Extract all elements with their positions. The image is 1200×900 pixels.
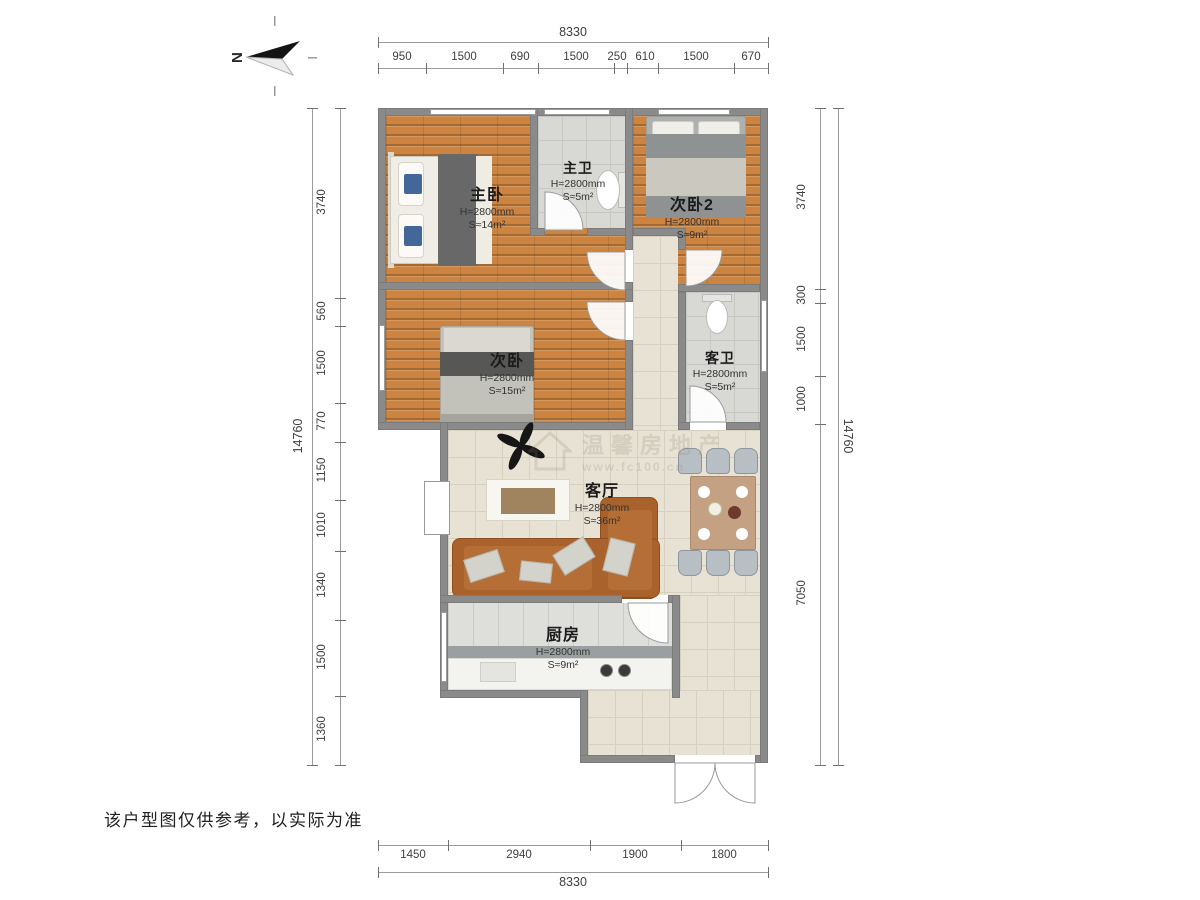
dim-total-bottom: 8330 bbox=[378, 875, 768, 889]
dim-label-top-5: 610 bbox=[615, 51, 675, 63]
dim-tick bbox=[448, 840, 449, 851]
dim-tick bbox=[335, 696, 346, 697]
wall bbox=[580, 690, 588, 763]
dim-tick bbox=[335, 765, 346, 766]
dim-label-left-8: 1360 bbox=[316, 699, 328, 759]
bay-window-opening bbox=[441, 487, 447, 529]
dining-chair bbox=[734, 448, 758, 474]
dim-tick bbox=[833, 108, 844, 109]
tv bbox=[501, 488, 555, 514]
wall bbox=[378, 282, 633, 290]
wall bbox=[440, 595, 622, 603]
dim-label-left-2: 1500 bbox=[316, 333, 328, 393]
dim-line-right-total bbox=[838, 108, 839, 765]
dim-line-right-segments bbox=[820, 108, 821, 765]
kitchen-backsplash bbox=[448, 646, 672, 658]
dim-tick bbox=[378, 63, 379, 74]
dining-chair bbox=[678, 550, 702, 576]
master-bed-blue-pillow bbox=[404, 174, 422, 194]
dining-chair bbox=[734, 550, 758, 576]
dim-label-bottom-3: 1800 bbox=[694, 849, 754, 861]
dim-tick bbox=[590, 840, 591, 851]
window bbox=[658, 109, 730, 115]
dim-label-left-5: 1010 bbox=[316, 495, 328, 555]
wall bbox=[625, 288, 633, 302]
dim-label-left-3: 770 bbox=[316, 391, 328, 451]
bedroom3-blanket-band bbox=[440, 352, 534, 376]
dim-label-right-3: 1000 bbox=[796, 369, 808, 429]
guest-toilet bbox=[706, 300, 728, 334]
wall bbox=[678, 284, 760, 292]
dim-label-left-1: 560 bbox=[316, 281, 328, 341]
dining-chair bbox=[678, 448, 702, 474]
dim-tick bbox=[681, 840, 682, 851]
window bbox=[379, 325, 385, 391]
dim-label-top-1: 1500 bbox=[434, 51, 494, 63]
window bbox=[761, 300, 767, 372]
plate bbox=[698, 528, 710, 540]
floor-hallway bbox=[633, 236, 678, 430]
dim-label-top-7: 670 bbox=[721, 51, 781, 63]
dim-total-right: 14760 bbox=[841, 336, 855, 536]
dim-label-right-0: 3740 bbox=[796, 167, 808, 227]
dim-tick bbox=[658, 63, 659, 74]
wall bbox=[672, 595, 680, 698]
kitchen-sink bbox=[480, 662, 516, 682]
window bbox=[544, 109, 610, 115]
dim-line-bottom-total bbox=[378, 872, 768, 873]
disclaimer-text: 该户型图仅供参考，以实际为准 bbox=[104, 806, 363, 831]
stove-burner bbox=[618, 664, 631, 677]
entry-door-left bbox=[675, 763, 715, 803]
dim-tick bbox=[815, 376, 826, 377]
plate bbox=[736, 486, 748, 498]
dim-label-right-1: 300 bbox=[796, 265, 808, 325]
wall bbox=[726, 422, 760, 430]
dim-tick bbox=[307, 108, 318, 109]
dim-tick bbox=[538, 63, 539, 74]
dim-tick bbox=[426, 63, 427, 74]
dim-tick bbox=[335, 326, 346, 327]
dim-tick bbox=[815, 108, 826, 109]
window bbox=[441, 612, 447, 682]
wall bbox=[378, 422, 633, 430]
dim-total-top: 8330 bbox=[378, 25, 768, 39]
dim-tick bbox=[378, 867, 379, 878]
stove-burner bbox=[600, 664, 613, 677]
dim-line-top-total bbox=[378, 42, 768, 43]
dim-tick bbox=[815, 303, 826, 304]
dining-chair bbox=[706, 448, 730, 474]
dim-tick bbox=[815, 765, 826, 766]
dim-label-top-3: 1500 bbox=[546, 51, 606, 63]
dim-label-left-0: 3740 bbox=[316, 172, 328, 232]
dim-label-top-2: 690 bbox=[490, 51, 550, 63]
window bbox=[430, 109, 536, 115]
wall bbox=[440, 690, 588, 698]
dim-tick bbox=[335, 620, 346, 621]
plate bbox=[736, 528, 748, 540]
dim-tick bbox=[627, 63, 628, 74]
dim-label-right-2: 1500 bbox=[796, 309, 808, 369]
wall bbox=[760, 108, 768, 763]
sofa-pillow bbox=[519, 560, 553, 583]
wall bbox=[625, 108, 633, 250]
dim-tick bbox=[768, 840, 769, 851]
north-label: N bbox=[229, 52, 246, 63]
dim-label-top-0: 950 bbox=[372, 51, 432, 63]
wall bbox=[580, 755, 675, 763]
dim-tick bbox=[335, 442, 346, 443]
bedroom2-sheet bbox=[646, 158, 746, 196]
floor-plan-canvas: N 主卧 H=2800mm S≈14m² 主卫 H=2800mm S≈5m² 次… bbox=[0, 0, 1200, 900]
wall bbox=[530, 228, 545, 236]
table-dish bbox=[728, 506, 741, 519]
dim-tick bbox=[335, 108, 346, 109]
dim-label-left-7: 1500 bbox=[316, 627, 328, 687]
dim-tick bbox=[335, 298, 346, 299]
wall bbox=[678, 292, 686, 430]
dim-label-bottom-2: 1900 bbox=[605, 849, 665, 861]
wall bbox=[625, 340, 633, 430]
dining-chair bbox=[706, 550, 730, 576]
dim-label-top-6: 1500 bbox=[666, 51, 726, 63]
entry-door-right bbox=[715, 763, 755, 803]
bedroom3-pillow-area bbox=[444, 328, 530, 354]
wall bbox=[530, 108, 538, 236]
master-bed-blue-pillow bbox=[404, 226, 422, 246]
dim-tick bbox=[768, 867, 769, 878]
table-flower bbox=[708, 502, 722, 516]
dim-tick bbox=[815, 289, 826, 290]
dim-label-bottom-1: 2940 bbox=[489, 849, 549, 861]
dim-tick bbox=[734, 63, 735, 74]
master-bed-blanket bbox=[438, 154, 478, 266]
floor-entry bbox=[588, 690, 760, 755]
dim-tick bbox=[833, 765, 844, 766]
dim-line-left-total bbox=[312, 108, 313, 765]
dim-tick bbox=[378, 840, 379, 851]
dim-line-bottom-segments bbox=[378, 845, 768, 846]
dim-line-left-segments bbox=[340, 108, 341, 765]
dim-tick bbox=[614, 63, 615, 74]
dim-tick bbox=[503, 63, 504, 74]
dim-tick bbox=[815, 424, 826, 425]
dim-label-right-4: 7050 bbox=[796, 563, 808, 623]
dim-label-top-4: 250 bbox=[587, 51, 647, 63]
wall bbox=[678, 422, 690, 430]
dim-tick bbox=[768, 63, 769, 74]
dim-label-left-4: 1150 bbox=[316, 440, 328, 500]
dim-tick bbox=[335, 551, 346, 552]
dim-tick bbox=[768, 37, 769, 48]
dim-label-bottom-0: 1450 bbox=[383, 849, 443, 861]
wall bbox=[633, 228, 686, 236]
wall bbox=[678, 236, 686, 250]
plate bbox=[698, 486, 710, 498]
master-bed-foot bbox=[476, 156, 492, 264]
north-arrow-icon: N bbox=[222, 12, 318, 100]
master-toilet bbox=[596, 170, 620, 210]
dim-total-left: 14760 bbox=[291, 336, 305, 536]
dim-line-top-segments bbox=[378, 68, 768, 69]
dim-tick bbox=[335, 500, 346, 501]
dim-label-left-6: 1340 bbox=[316, 555, 328, 615]
dim-tick bbox=[335, 403, 346, 404]
dim-tick bbox=[307, 765, 318, 766]
dim-tick bbox=[378, 37, 379, 48]
